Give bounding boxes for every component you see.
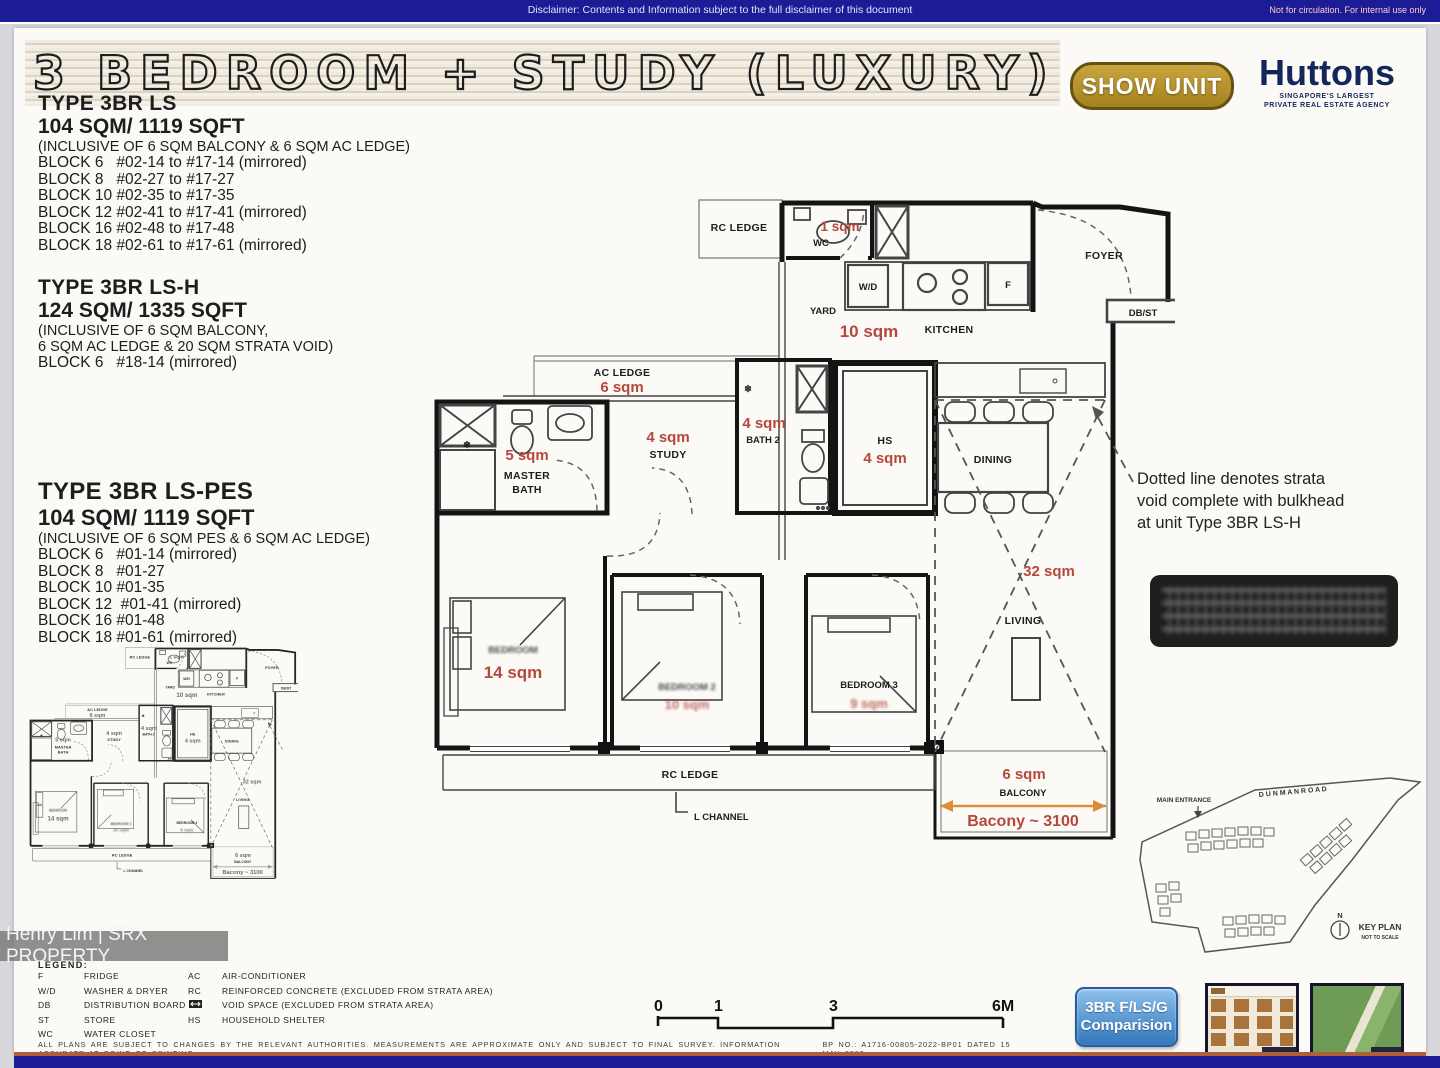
area-living-void: 32 sqm xyxy=(1023,563,1075,580)
area-master-bath: 5 sqm xyxy=(505,447,548,464)
area-study: 4 sqm xyxy=(646,429,689,446)
block-row: BLOCK 10 #01-35 xyxy=(38,580,370,597)
type-inclusive: 6 SQM AC LEDGE & 20 SQM STRATA VOID) xyxy=(38,339,333,355)
area-master-bedroom: 14 sqm xyxy=(484,663,543,682)
thumbnail-header xyxy=(1208,986,1296,997)
strata-void-note: Dotted line denotes strata void complete… xyxy=(1137,468,1397,534)
watermark: Henry Lim | SRX PROPERTY xyxy=(0,931,228,961)
internal-use-text: Not for circulation. For internal use on… xyxy=(1269,5,1426,15)
legend-row: RCREINFORCED CONCRETE (EXCLUDED FROM STR… xyxy=(188,984,618,999)
ac-symbol: ❄ xyxy=(463,440,471,451)
label-bath2: BATH 2 xyxy=(746,435,780,446)
legend-abbr: HS xyxy=(188,1015,222,1025)
label-rc-ledge-bottom: RC LEDGE xyxy=(662,769,719,781)
scale-6m: 6M xyxy=(992,998,1014,1015)
compass-north: N xyxy=(1337,911,1342,920)
legend-term: REINFORCED CONCRETE (EXCLUDED FROM STRAT… xyxy=(222,986,618,996)
area-yard: 10 sqm xyxy=(840,322,899,341)
label-hs: HS xyxy=(877,435,892,447)
label-kitchen: KITCHEN xyxy=(925,324,974,336)
road-label: D U N M A N R O A D xyxy=(1259,786,1328,799)
block-row: BLOCK 10 #02-35 to #17-35 xyxy=(38,188,410,205)
kitchen-fixtures xyxy=(845,262,1175,322)
living-console xyxy=(1012,638,1040,700)
legend-abbr: RC xyxy=(188,986,222,996)
legend-row: ACAIR-CONDITIONER xyxy=(188,969,618,984)
scale-1: 1 xyxy=(714,998,723,1015)
top-disclaimer-bar: Disclaimer: Contents and Information sub… xyxy=(0,0,1440,24)
rc-ledge-bottom xyxy=(443,755,935,812)
thumbnail-map xyxy=(1313,986,1401,1056)
area-wc: 1 sqm xyxy=(820,219,859,234)
label-dbst: DB/ST xyxy=(1129,308,1158,319)
huttons-logo: Huttons SINGAPORE'S LARGEST PRIVATE REAL… xyxy=(1252,54,1402,110)
block-row: BLOCK 16 #01-48 xyxy=(38,613,370,630)
note-line: at unit Type 3BR LS-H xyxy=(1137,512,1397,534)
type-3br-ls-block: TYPE 3BR LS 104 SQM/ 1119 SQFT (INCLUSIV… xyxy=(38,92,410,254)
floor-plan-drawing: RC LEDGE WC W/D F YARD KITCHEN FOYER DB/… xyxy=(437,200,1175,838)
type-3br-ls-h-block: TYPE 3BR LS-H 124 SQM/ 1335 SQFT (INCLUS… xyxy=(38,276,333,372)
legend-abbr: WC xyxy=(38,1029,84,1039)
dining-set xyxy=(935,363,1105,513)
type-inclusive: (INCLUSIVE OF 6 SQM BALCONY & 6 SQM AC L… xyxy=(38,139,410,155)
mini-floor-plan xyxy=(28,642,298,888)
legend-term: HOUSEHOLD SHELTER xyxy=(222,1015,618,1025)
outer-walls xyxy=(437,203,1168,838)
label-master-bedroom: BEDROOM xyxy=(488,645,538,656)
area-bath2: 4 sqm xyxy=(742,415,785,432)
label-bath: BATH xyxy=(512,484,542,496)
legend-abbr: W/D xyxy=(38,986,84,996)
legend-abbr: DB xyxy=(38,1000,84,1010)
comparison-line1: 3BR F/LS/G xyxy=(1085,999,1168,1017)
key-plan-label: KEY PLAN xyxy=(1359,922,1402,932)
block-row: BLOCK 8 #01-27 xyxy=(38,564,370,581)
label-bedroom2: BEDROOM 2 xyxy=(658,682,716,693)
label-foyer: FOYER xyxy=(1085,250,1123,262)
block-row: BLOCK 8 #02-27 to #17-27 xyxy=(38,172,410,189)
disclaimer-text: Disclaimer: Contents and Information sub… xyxy=(0,4,1440,16)
void-space-icon xyxy=(188,999,222,1011)
label-wc: WC xyxy=(813,238,829,249)
show-unit-badge: SHOW UNIT xyxy=(1070,62,1234,110)
unit-mix-thumbnail[interactable] xyxy=(1205,983,1299,1059)
agent-contact-badge xyxy=(1150,575,1398,647)
bath2-fixtures xyxy=(800,430,829,509)
main-floor-plan: RC LEDGE WC W/D F YARD KITCHEN FOYER DB/… xyxy=(430,185,1175,865)
thumbnail-chart xyxy=(1211,998,1293,1046)
type-inclusive: (INCLUSIVE OF 6 SQM PES & 6 SQM AC LEDGE… xyxy=(38,531,370,547)
label-ac-ledge: AC LEDGE xyxy=(594,367,651,379)
key-plan: MAIN ENTRANCE D U N M A N R O A D N KEY … xyxy=(1128,772,1435,968)
type-name: TYPE 3BR LS-H xyxy=(38,276,333,299)
area-hs: 4 sqm xyxy=(863,450,906,467)
type-name: TYPE 3BR LS xyxy=(38,92,410,115)
inner-walls xyxy=(605,203,928,748)
legend-term: AIR-CONDITIONER xyxy=(222,971,618,981)
scale-0: 0 xyxy=(654,998,663,1015)
label-rc-ledge-top: RC LEDGE xyxy=(711,222,768,234)
label-l-channel: L CHANNEL xyxy=(694,812,749,823)
label-master: MASTER xyxy=(504,470,550,482)
legend-row: HSHOUSEHOLD SHELTER xyxy=(188,1013,618,1028)
area-balcony: 6 sqm xyxy=(1002,766,1045,783)
balcony-dimension: Bacony ~ 3100 xyxy=(967,813,1079,830)
ac-symbol: ❄ xyxy=(744,384,752,395)
legend-abbr: ST xyxy=(38,1015,84,1025)
block-row: BLOCK 12 #01-41 (mirrored) xyxy=(38,597,370,614)
label-yard: YARD xyxy=(810,306,836,317)
ac-closet xyxy=(440,450,495,510)
not-to-scale-label: NOT TO SCALE xyxy=(1361,935,1399,941)
comparison-line2: Comparision xyxy=(1081,1017,1173,1035)
scale-bar: 0 1 3 6M xyxy=(648,996,1023,1038)
type-area: 104 SQM/ 1119 SQFT xyxy=(38,505,370,531)
site-plan-thumbnail[interactable] xyxy=(1310,983,1404,1059)
label-wd: W/D xyxy=(859,282,878,293)
block-row: BLOCK 6 #18-14 (mirrored) xyxy=(38,355,333,372)
type-inclusive: (INCLUSIVE OF 6 SQM BALCONY, xyxy=(38,323,333,339)
building-footprints xyxy=(1156,819,1360,937)
blurred-text xyxy=(1162,587,1386,635)
legend-col2: ACAIR-CONDITIONER RCREINFORCED CONCRETE … xyxy=(188,969,618,1027)
windows xyxy=(470,740,944,754)
huttons-wordmark: Huttons xyxy=(1252,54,1402,92)
label-dining: DINING xyxy=(974,454,1013,466)
note-line: void complete with bulkhead xyxy=(1137,490,1397,512)
block-row: BLOCK 18 #02-61 to #17-61 (mirrored) xyxy=(38,238,410,255)
label-living: LIVING xyxy=(1005,615,1042,627)
note-line: Dotted line denotes strata xyxy=(1137,468,1397,490)
block-row: BLOCK 16 #02-48 to #17-48 xyxy=(38,221,410,238)
page: Disclaimer: Contents and Information sub… xyxy=(0,0,1440,1068)
label-balcony: BALCONY xyxy=(1000,788,1048,799)
type-area: 124 SQM/ 1335 SQFT xyxy=(38,299,333,323)
type-area: 104 SQM/ 1119 SQFT xyxy=(38,115,410,139)
huttons-tagline-2: PRIVATE REAL ESTATE AGENCY xyxy=(1252,101,1402,110)
block-row: BLOCK 6 #02-14 to #17-14 (mirrored) xyxy=(38,155,410,172)
scale-3: 3 xyxy=(829,998,838,1015)
legend-abbr: F xyxy=(38,971,84,981)
main-entrance-label: MAIN ENTRANCE xyxy=(1157,797,1212,804)
comparison-button[interactable]: 3BR F/LS/G Comparision xyxy=(1075,987,1178,1047)
block-row: BLOCK 6 #01-14 (mirrored) xyxy=(38,547,370,564)
area-bedroom2: 10 sqm xyxy=(665,697,710,712)
ledges xyxy=(503,200,785,560)
label-study: STUDY xyxy=(649,449,686,461)
block-row: BLOCK 12 #02-41 to #17-41 (mirrored) xyxy=(38,205,410,222)
scale-line xyxy=(658,1016,1003,1028)
area-ac-ledge: 6 sqm xyxy=(600,379,643,396)
huttons-tagline-1: SINGAPORE'S LARGEST xyxy=(1252,92,1402,101)
legend-term: VOID SPACE (EXCLUDED FROM STRATA AREA) xyxy=(222,1000,618,1010)
label-fridge: F xyxy=(1005,280,1011,291)
bottom-navy-bar xyxy=(14,1056,1440,1068)
door-swings xyxy=(552,210,1131,624)
legend-row: VOID SPACE (EXCLUDED FROM STRATA AREA) xyxy=(188,998,618,1013)
legend-abbr: AC xyxy=(188,971,222,981)
label-bedroom3: BEDROOM 3 xyxy=(840,680,898,691)
area-bedroom3: 9 sqm xyxy=(850,696,888,711)
type-name: TYPE 3BR LS-PES xyxy=(38,478,370,505)
legend-term: WATER CLOSET xyxy=(84,1029,278,1039)
type-3br-ls-pes-block: TYPE 3BR LS-PES 104 SQM/ 1119 SQFT (INCL… xyxy=(38,478,370,646)
balcony-dimension-arrow xyxy=(940,800,1106,812)
